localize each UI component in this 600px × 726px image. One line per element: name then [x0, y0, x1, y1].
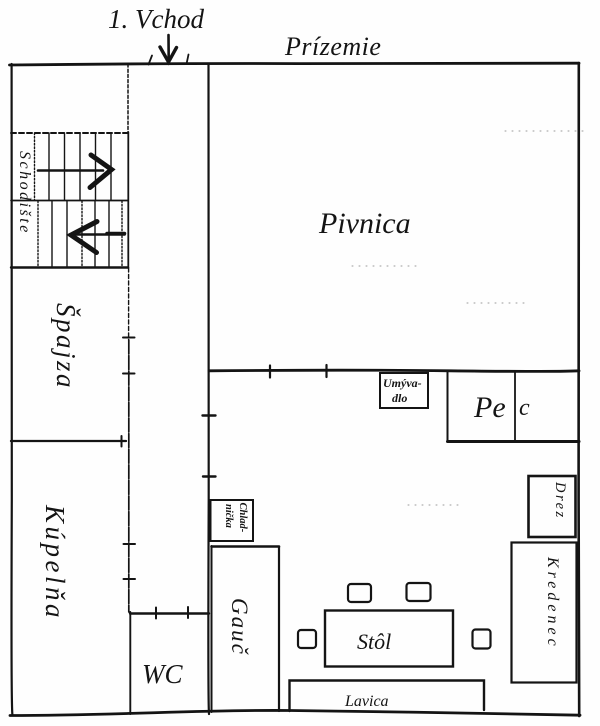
svg-text:Pivnica: Pivnica [318, 207, 411, 240]
svg-text:Umýva-: Umýva- [383, 376, 422, 390]
svg-text:1. Vchod: 1. Vchod [108, 4, 204, 34]
svg-text:Drez: Drez [552, 481, 568, 520]
svg-text:Pe: Pe [473, 391, 506, 424]
svg-text:Lavica: Lavica [344, 693, 389, 710]
svg-text:Chlad-: Chlad- [237, 503, 248, 533]
svg-text:c: c [519, 395, 530, 421]
svg-text:WC: WC [142, 659, 183, 689]
svg-text:nička: nička [223, 504, 234, 528]
svg-text:Prízemie: Prízemie [284, 32, 381, 61]
svg-text:Schodište: Schodište [16, 151, 33, 235]
svg-text:Gauč: Gauč [227, 598, 252, 656]
svg-text:Kredenec: Kredenec [544, 556, 561, 650]
svg-text:Špajza: Špajza [51, 303, 81, 390]
svg-text:Stôl: Stôl [357, 629, 391, 654]
svg-text:dlo: dlo [392, 391, 407, 405]
svg-text:Kúpelňa: Kúpelňa [40, 504, 70, 621]
